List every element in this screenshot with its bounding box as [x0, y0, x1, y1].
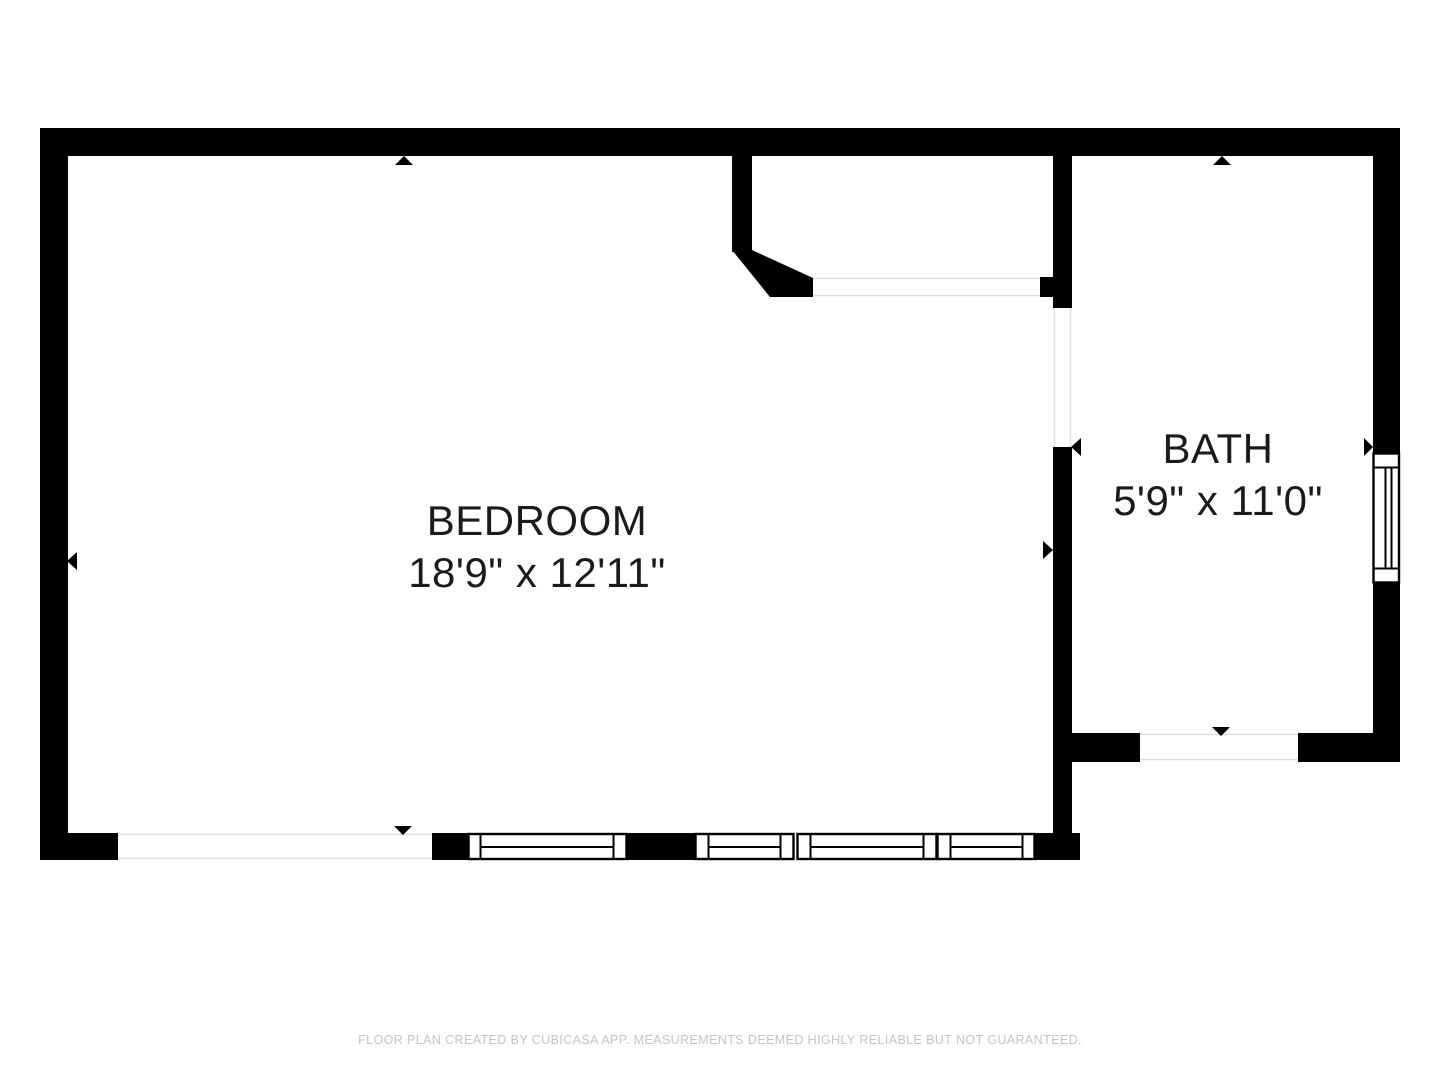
- door-marker-right-icon: [1364, 438, 1373, 456]
- window-bedroom-bottom-4: [938, 834, 1035, 859]
- window-bedroom-bottom-3: [798, 834, 937, 859]
- door-marker-down-icon: [394, 826, 412, 835]
- room-label-bath: BATH 5'9" x 11'0": [1113, 423, 1323, 527]
- door-marker-left-icon: [1071, 438, 1081, 456]
- door-marker-right-icon: [1043, 541, 1053, 559]
- opening-bath-bottom: [1140, 735, 1298, 760]
- wall-left: [40, 128, 68, 860]
- window-bedroom-bottom-1: [469, 834, 627, 859]
- room-name-bath: BATH: [1113, 423, 1323, 475]
- window-bedroom-bottom-2: [696, 834, 794, 859]
- wall-alcove-diagonal: [732, 250, 813, 297]
- room-dimensions-bedroom: 18'9" x 12'11": [408, 547, 666, 599]
- wall-bath-bottom-left: [1072, 733, 1140, 762]
- wall-right: [1373, 128, 1400, 762]
- opening-bath-door: [1055, 308, 1071, 447]
- wall-bottom-segment-1: [432, 833, 468, 860]
- wall-top: [40, 128, 1400, 156]
- interior-walls: [732, 156, 1072, 860]
- wall-divider-upper: [1053, 156, 1072, 308]
- room-name-bedroom: BEDROOM: [408, 495, 666, 547]
- footer-disclaimer: FLOOR PLAN CREATED BY CUBICASA APP. MEAS…: [0, 1033, 1440, 1047]
- room-label-bedroom: BEDROOM 18'9" x 12'11": [408, 495, 666, 599]
- window-bath-right: [1374, 454, 1400, 583]
- wall-openings: [118, 279, 1298, 859]
- opening-bedroom-bottom: [118, 835, 432, 859]
- wall-bottom-segment-2: [627, 833, 695, 860]
- wall-bath-bottom-right: [1298, 733, 1400, 762]
- door-marker-up-icon: [395, 156, 413, 165]
- wall-alcove-left: [732, 156, 752, 252]
- wall-divider-lower: [1053, 447, 1072, 860]
- opening-alcove: [813, 279, 1040, 296]
- room-dimensions-bath: 5'9" x 11'0": [1113, 475, 1323, 527]
- door-marker-left-icon: [67, 552, 77, 570]
- floor-plan-page: BEDROOM 18'9" x 12'11" BATH 5'9" x 11'0"…: [0, 0, 1440, 1080]
- wall-alcove-end-block: [1040, 277, 1053, 297]
- wall-bottom-left-corner: [40, 833, 118, 860]
- floor-plan-drawing: [0, 0, 1440, 1080]
- door-marker-up-icon: [1213, 156, 1231, 165]
